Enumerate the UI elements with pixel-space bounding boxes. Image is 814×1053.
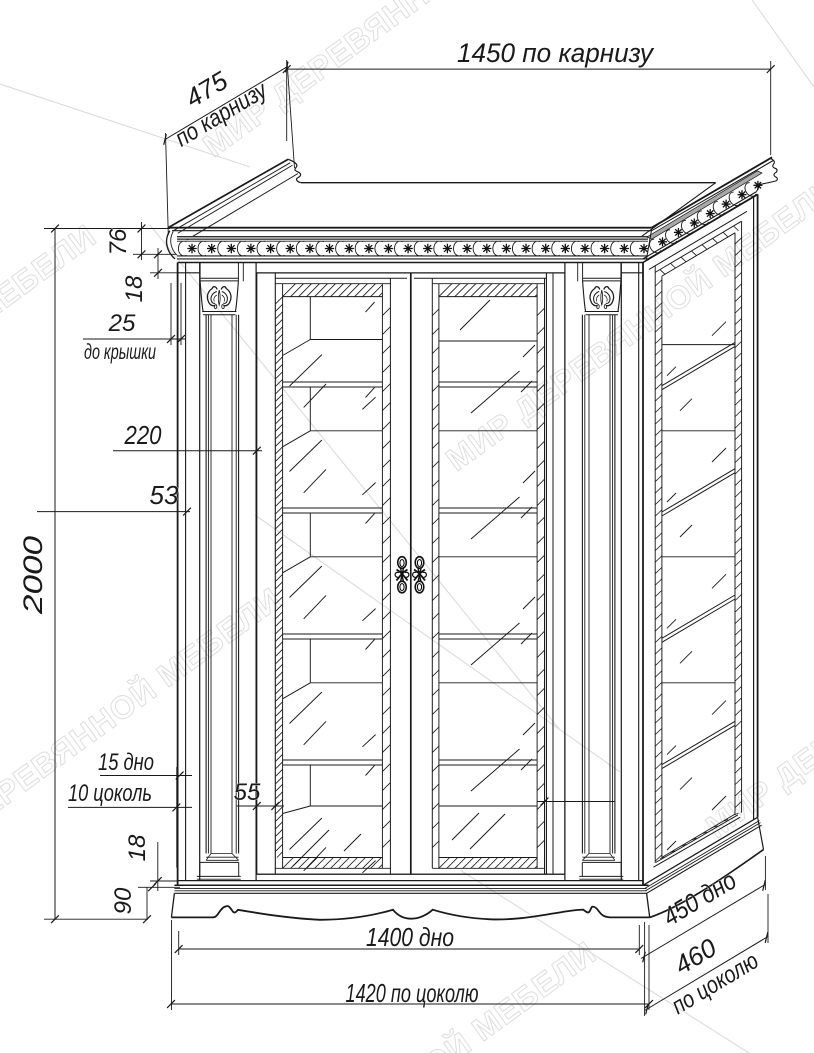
svg-text:10 цоколь: 10 цоколь	[68, 780, 152, 807]
svg-text:76: 76	[105, 228, 132, 255]
svg-text:до крышки: до крышки	[84, 341, 156, 364]
svg-text:1420 по цоколю: 1420 по цоколю	[346, 978, 479, 1008]
svg-text:15 дно: 15 дно	[98, 749, 154, 776]
svg-text:1400 дно: 1400 дно	[366, 922, 454, 952]
svg-text:90: 90	[110, 887, 137, 914]
svg-text:220: 220	[124, 420, 162, 450]
svg-text:2000: 2000	[18, 536, 48, 615]
svg-text:18: 18	[121, 275, 148, 302]
svg-text:18: 18	[124, 834, 151, 861]
svg-text:1450 по карнизу: 1450 по карнизу	[457, 38, 654, 68]
svg-text:55: 55	[234, 779, 261, 806]
svg-text:53: 53	[150, 480, 179, 510]
svg-text:25: 25	[108, 310, 136, 337]
